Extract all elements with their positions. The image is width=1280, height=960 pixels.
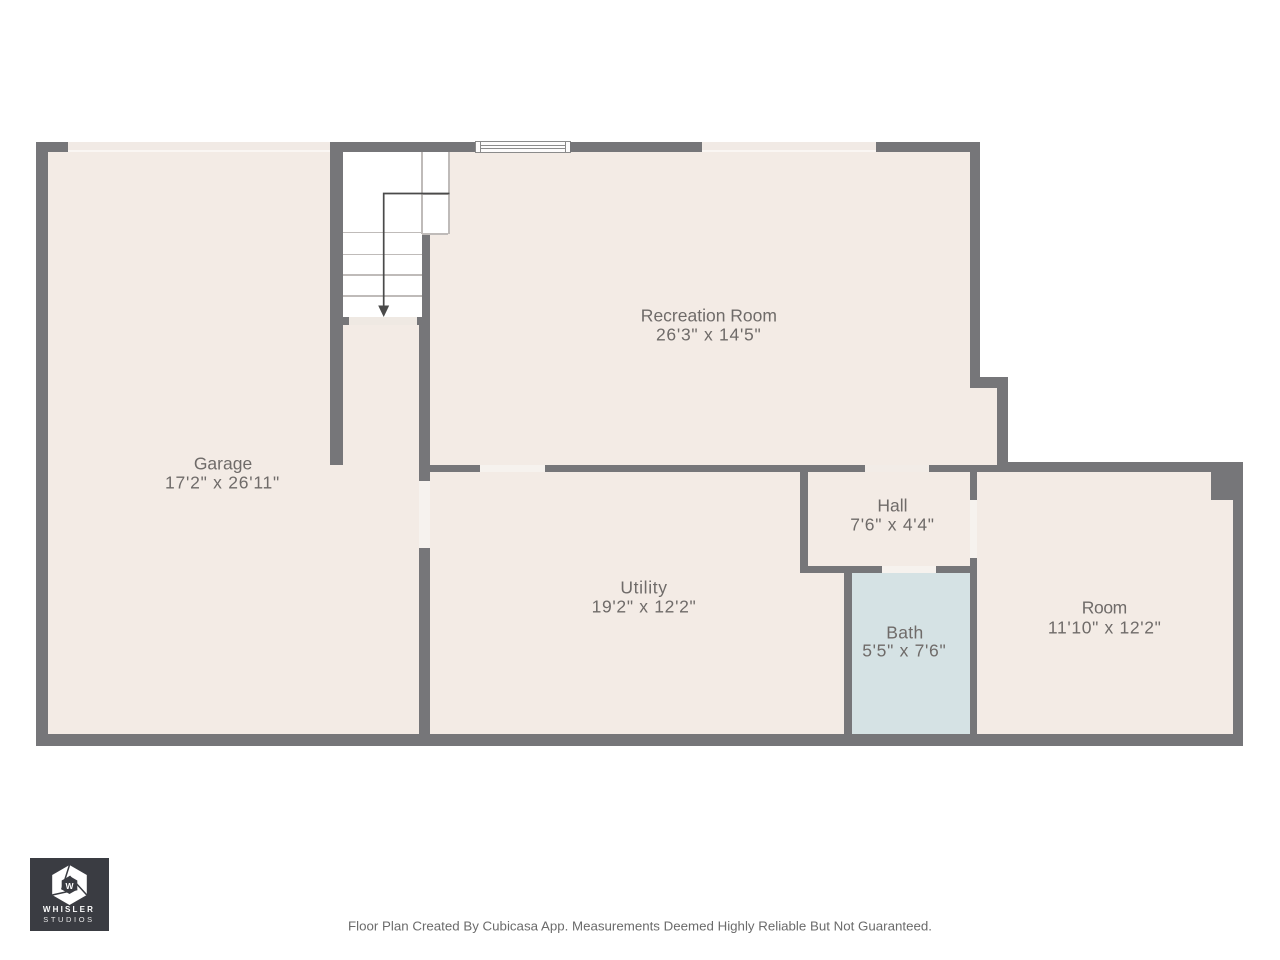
- svg-text:W: W: [65, 881, 74, 891]
